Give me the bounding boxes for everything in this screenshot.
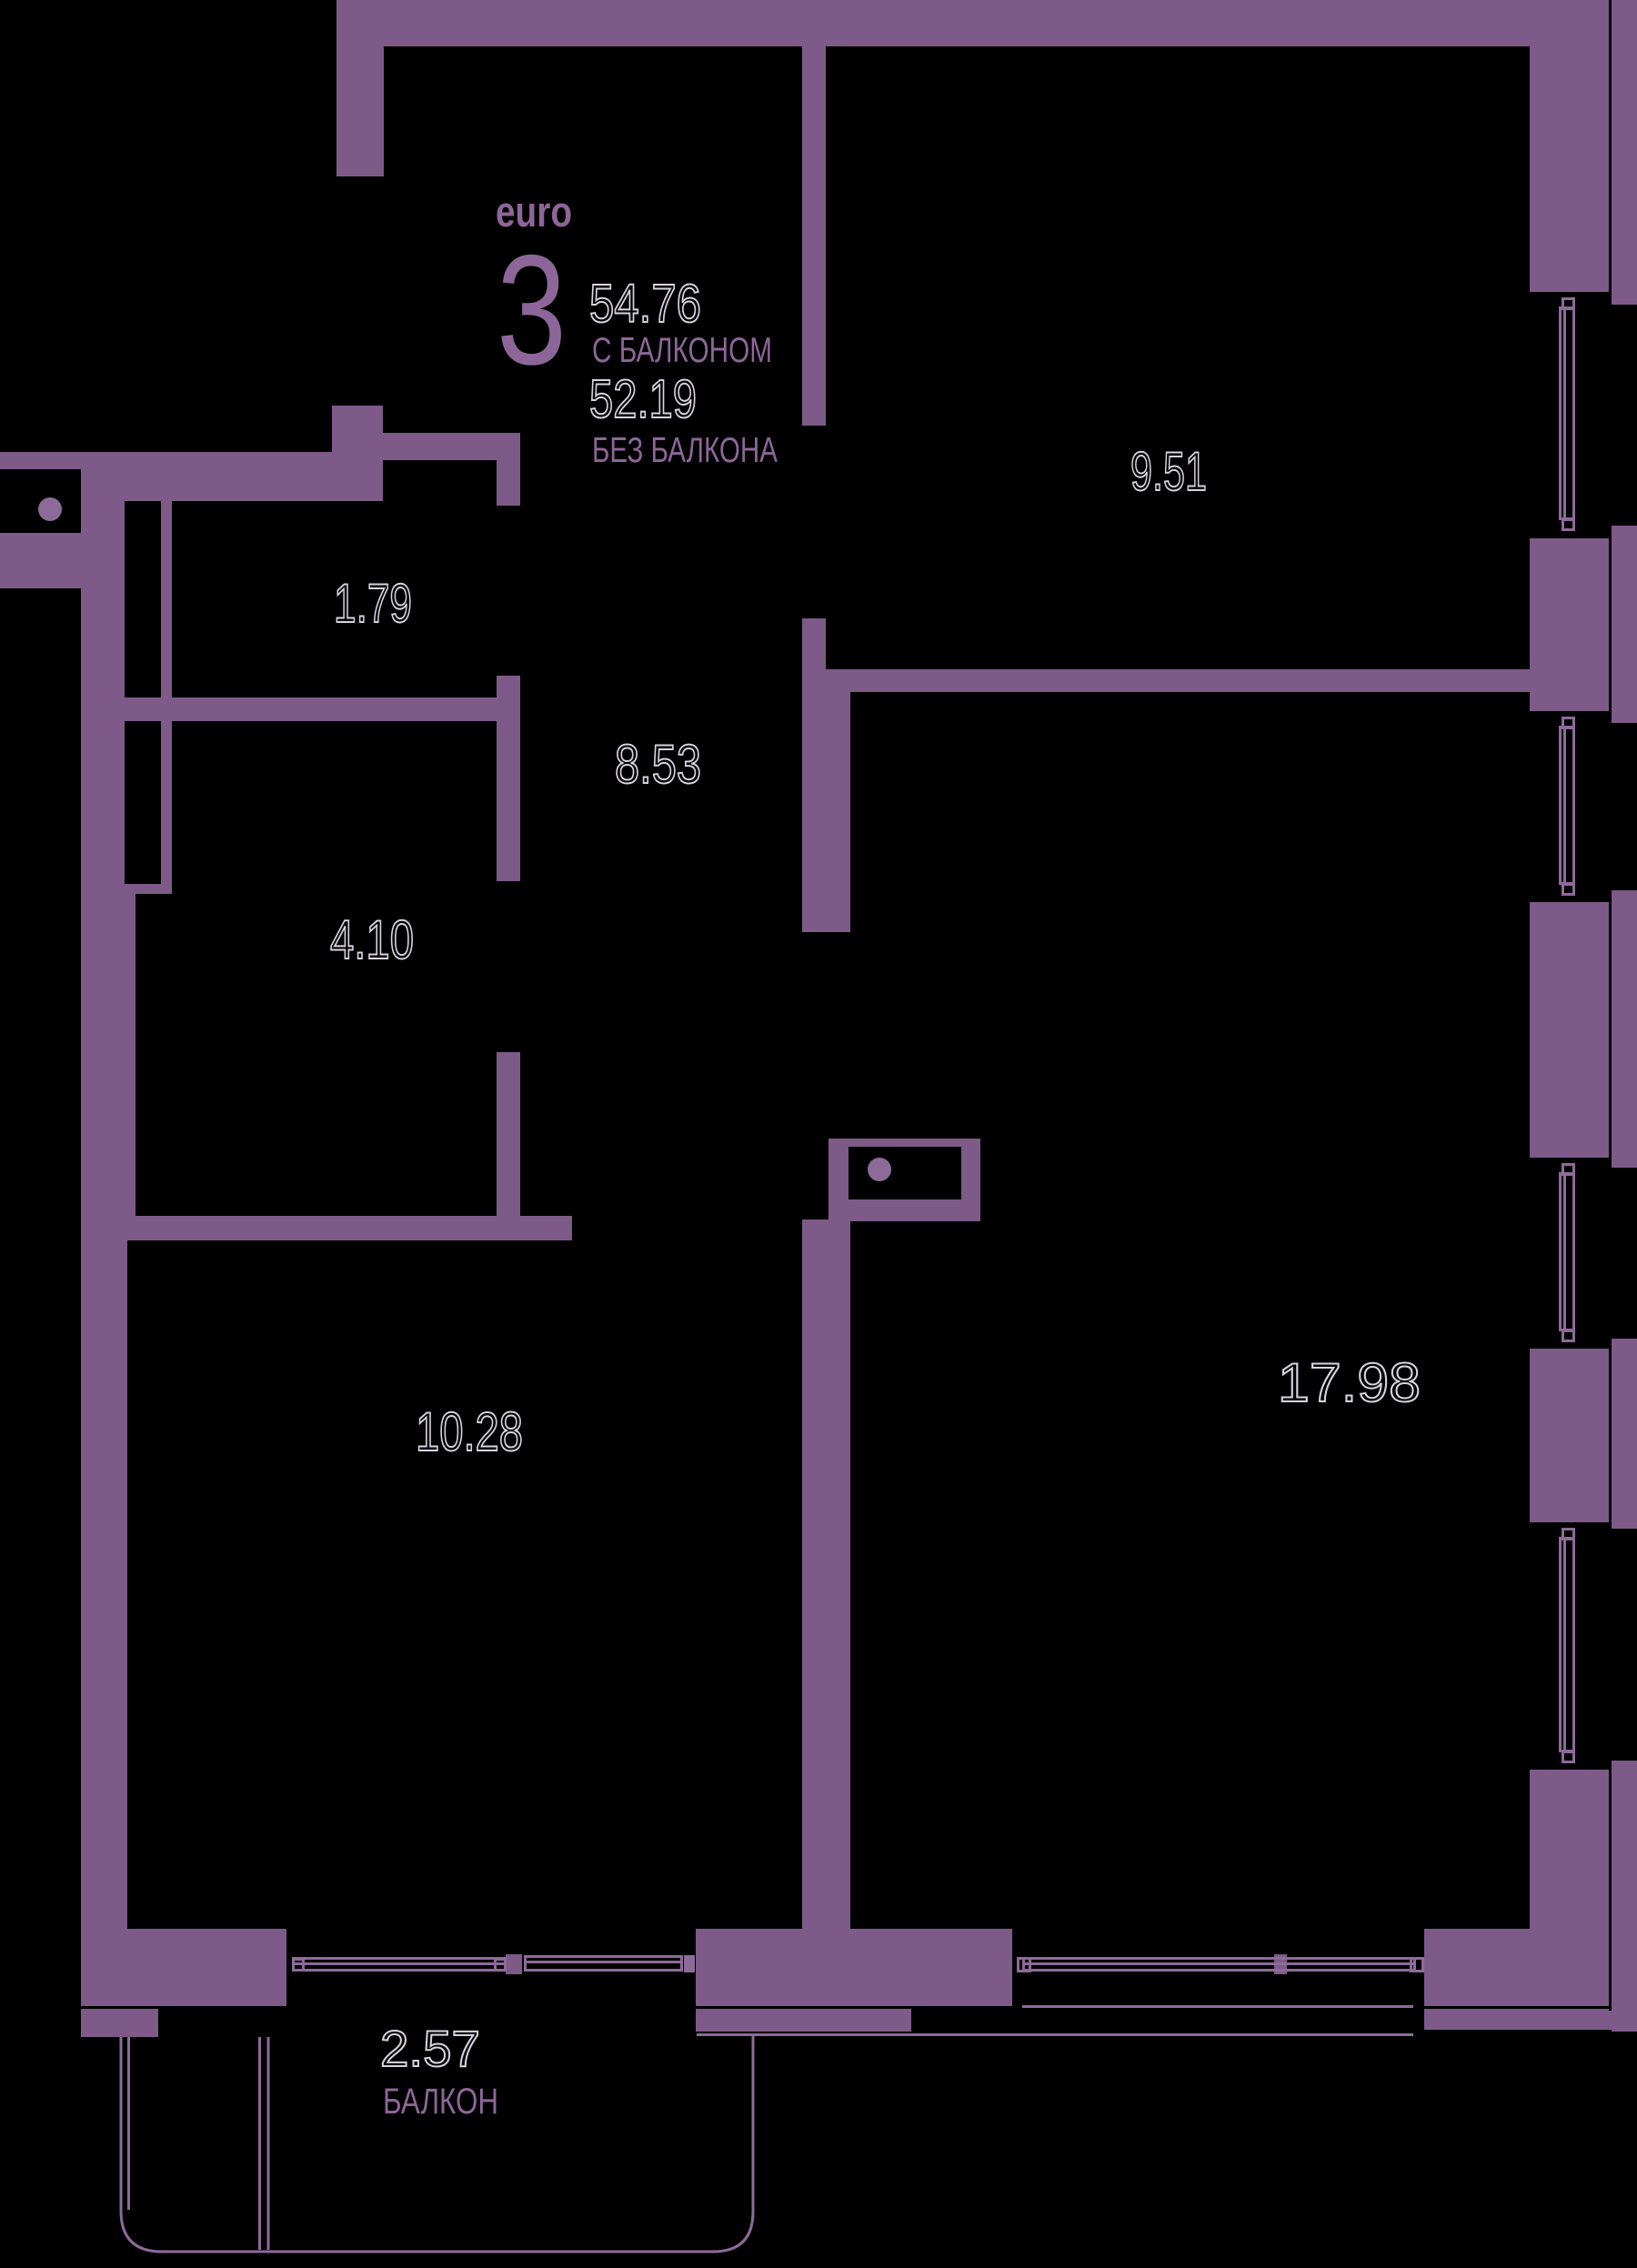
svg-text:9.51: 9.51 xyxy=(1130,441,1207,502)
svg-text:8.53: 8.53 xyxy=(615,734,701,795)
svg-text:10.28: 10.28 xyxy=(416,1401,523,1462)
svg-text:3: 3 xyxy=(497,223,567,397)
svg-text:52.19: 52.19 xyxy=(589,369,697,429)
svg-text:2.57: 2.57 xyxy=(380,2020,480,2077)
svg-text:БЕЗ БАЛКОНА: БЕЗ БАЛКОНА xyxy=(592,431,778,470)
svg-text:С БАЛКОНОМ: С БАЛКОНОМ xyxy=(592,331,772,370)
svg-text:1.79: 1.79 xyxy=(334,573,412,634)
svg-text:4.10: 4.10 xyxy=(330,909,414,970)
svg-text:БАЛКОН: БАЛКОН xyxy=(383,2082,498,2122)
svg-text:17.98: 17.98 xyxy=(1278,1352,1421,1413)
svg-text:54.76: 54.76 xyxy=(589,274,701,334)
